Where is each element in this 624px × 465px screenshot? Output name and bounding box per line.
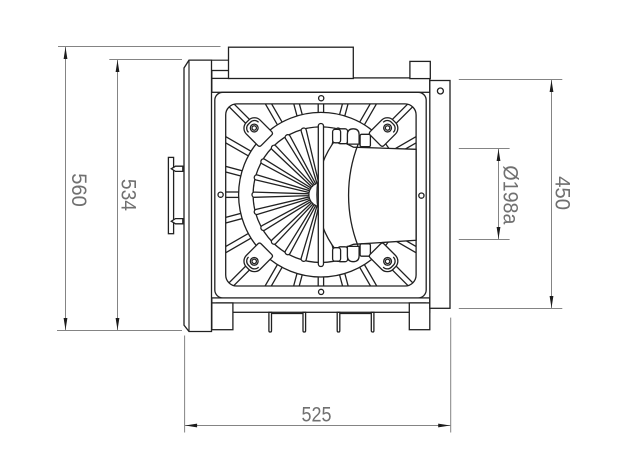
svg-text:534: 534 [117,179,140,211]
svg-text:450: 450 [550,176,573,210]
svg-text:560: 560 [67,173,90,207]
svg-text:525: 525 [302,403,332,426]
svg-text:Ø198a: Ø198a [499,165,522,224]
